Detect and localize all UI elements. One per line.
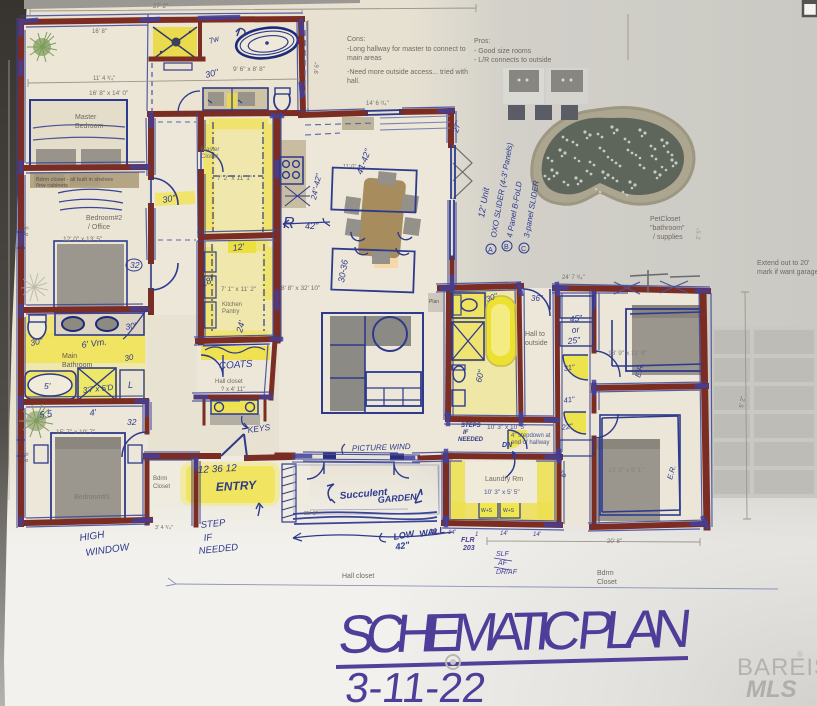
svg-text:12 36 12: 12 36 12 — [198, 463, 238, 476]
svg-text:-Long hallway for master to co: -Long hallway for master to connect to — [347, 46, 466, 53]
svg-text:20' 8": 20' 8" — [607, 539, 622, 545]
svg-text:A: A — [488, 247, 493, 254]
svg-text:45": 45" — [569, 313, 583, 324]
svg-text:Plan: Plan — [429, 299, 439, 305]
svg-text:-Need more outside access... t: -Need more outside access... tried with — [347, 69, 468, 76]
svg-text:Master: Master — [201, 147, 219, 153]
svg-text:Bathroom: Bathroom — [62, 362, 93, 369]
svg-text:AF: AF — [497, 560, 508, 567]
svg-text:3-11-22: 3-11-22 — [343, 664, 489, 706]
svg-text:B: B — [504, 244, 509, 251]
svg-text:7' 1" x 11' 2": 7' 1" x 11' 2" — [221, 286, 257, 293]
svg-text:5': 5' — [44, 381, 51, 391]
svg-text:Pros:: Pros: — [474, 38, 490, 45]
svg-text:end of hallway: end of hallway — [511, 440, 549, 446]
svg-text:C: C — [521, 246, 526, 253]
svg-text:Hall closet: Hall closet — [342, 573, 374, 580]
svg-text:24' 7 ³/₄": 24' 7 ³/₄" — [562, 275, 585, 281]
svg-text:5.5: 5.5 — [39, 408, 54, 420]
svg-text:12' 0" x 13' 5": 12' 0" x 13' 5" — [63, 236, 103, 243]
svg-text:16' 8" x 14' 0": 16' 8" x 14' 0" — [89, 90, 129, 97]
svg-text:14' 6 ³/₄": 14' 6 ³/₄" — [366, 101, 389, 107]
svg-text:8' 6": 8' 6" — [24, 450, 30, 462]
svg-text:25": 25" — [566, 335, 581, 346]
svg-text:4" stepdown at: 4" stepdown at — [511, 433, 551, 439]
svg-text:Closet: Closet — [597, 579, 617, 586]
svg-text:8' 5": 8' 5" — [24, 224, 30, 236]
svg-text:Closet: Closet — [153, 484, 170, 490]
svg-text:Extend out to 20': Extend out to 20' — [757, 260, 809, 267]
svg-text:Bdrm: Bdrm — [153, 476, 167, 482]
svg-text:Kitchen: Kitchen — [222, 302, 242, 308]
svg-text:14': 14' — [448, 530, 457, 536]
svg-text:203: 203 — [462, 545, 475, 552]
svg-text:10' 3" x 5' 5": 10' 3" x 5' 5" — [484, 489, 520, 496]
svg-text:outside: outside — [525, 340, 548, 347]
svg-text:/low cabinets: /low cabinets — [36, 183, 68, 189]
svg-text:Bdrm: Bdrm — [597, 570, 614, 577]
svg-text:22": 22" — [560, 421, 573, 432]
svg-text:9' 6": 9' 6" — [314, 62, 321, 74]
svg-text:14': 14' — [500, 531, 509, 537]
svg-text:- L/R connects to outside: - L/R connects to outside — [474, 57, 552, 64]
svg-text:W+S: W+S — [481, 508, 493, 514]
svg-text:14': 14' — [533, 532, 542, 538]
svg-text:13' 9" x 11' 9": 13' 9" x 11' 9" — [608, 350, 647, 357]
svg-text:Pantry: Pantry — [222, 309, 239, 315]
svg-text:mark if want garage.: mark if want garage. — [757, 269, 817, 276]
svg-text:? x 4' 11": ? x 4' 11" — [221, 387, 245, 393]
svg-text:Bedroom#1: Bedroom#1 — [74, 494, 110, 501]
svg-text:1: 1 — [475, 532, 478, 538]
svg-text:main areas: main areas — [347, 55, 382, 62]
svg-text:Bedroom#2: Bedroom#2 — [86, 215, 122, 222]
svg-text:9' 6" x 8' 8": 9' 6" x 8' 8" — [233, 66, 266, 73]
svg-text:IF: IF — [463, 430, 469, 436]
svg-text:41": 41" — [563, 394, 575, 404]
svg-text:STEPS: STEPS — [461, 423, 481, 429]
svg-text:36": 36" — [531, 294, 544, 303]
svg-text:Bedroom: Bedroom — [75, 123, 104, 130]
svg-text:DN: DN — [502, 442, 513, 449]
svg-text:30': 30' — [125, 320, 138, 332]
svg-text:32: 32 — [127, 417, 137, 427]
svg-text:/ Office: / Office — [88, 224, 110, 231]
svg-text:Main: Main — [62, 353, 77, 360]
svg-text:31": 31" — [563, 362, 575, 372]
svg-text:ALL: ALL — [429, 529, 444, 536]
svg-text:DR/AF: DR/AF — [496, 569, 518, 576]
svg-text:hall.: hall. — [347, 78, 360, 85]
svg-text:12': 12' — [232, 241, 245, 253]
svg-text:- Good size rooms: - Good size rooms — [474, 48, 532, 55]
svg-text:MLS: MLS — [746, 676, 797, 703]
svg-text:10' 3" x 10' 5": 10' 3" x 10' 5" — [487, 424, 527, 431]
svg-text:W+S: W+S — [503, 508, 515, 514]
svg-text:/ supplies: / supplies — [653, 234, 683, 241]
svg-text:13' 9" x 9' 1": 13' 9" x 9' 1" — [608, 467, 644, 474]
svg-text:16' 8": 16' 8" — [92, 29, 107, 35]
svg-text:15' 7" x 10' 7": 15' 7" x 10' 7" — [56, 429, 96, 436]
svg-text:ENTRY: ENTRY — [215, 478, 257, 494]
svg-text:NEEDED: NEEDED — [458, 437, 484, 443]
svg-text:SCHEMATIC PLAN: SCHEMATIC PLAN — [336, 599, 695, 665]
svg-text:Hall closet: Hall closet — [215, 379, 243, 385]
svg-text:L: L — [128, 380, 133, 390]
svg-text:27' 2": 27' 2" — [153, 4, 168, 10]
svg-text:Cons:: Cons: — [347, 36, 365, 43]
svg-text:SLF: SLF — [496, 551, 510, 558]
svg-text:32: 32 — [130, 260, 140, 270]
svg-text:2' 5": 2' 5" — [696, 228, 703, 240]
svg-text:®: ® — [797, 650, 803, 659]
svg-text:3' 4 ³/₄": 3' 4 ³/₄" — [155, 525, 173, 531]
svg-text:"bathroom": "bathroom" — [650, 225, 685, 232]
svg-text:11' 4 ³/₄": 11' 4 ³/₄" — [93, 76, 115, 82]
svg-text:PetCloset: PetCloset — [650, 216, 680, 223]
svg-text:Master: Master — [75, 114, 97, 121]
svg-text:FLR: FLR — [461, 537, 475, 544]
svg-text:25' 8": 25' 8" — [304, 511, 318, 517]
svg-text:Closet: Closet — [201, 154, 218, 160]
svg-text:Laundry Rm: Laundry Rm — [485, 476, 523, 483]
svg-text:Hall to: Hall to — [525, 331, 545, 338]
svg-text:8' 8" x 32' 10": 8' 8" x 32' 10" — [281, 285, 321, 292]
svg-text:7' 2" x 11' 1": 7' 2" x 11' 1" — [217, 175, 253, 182]
